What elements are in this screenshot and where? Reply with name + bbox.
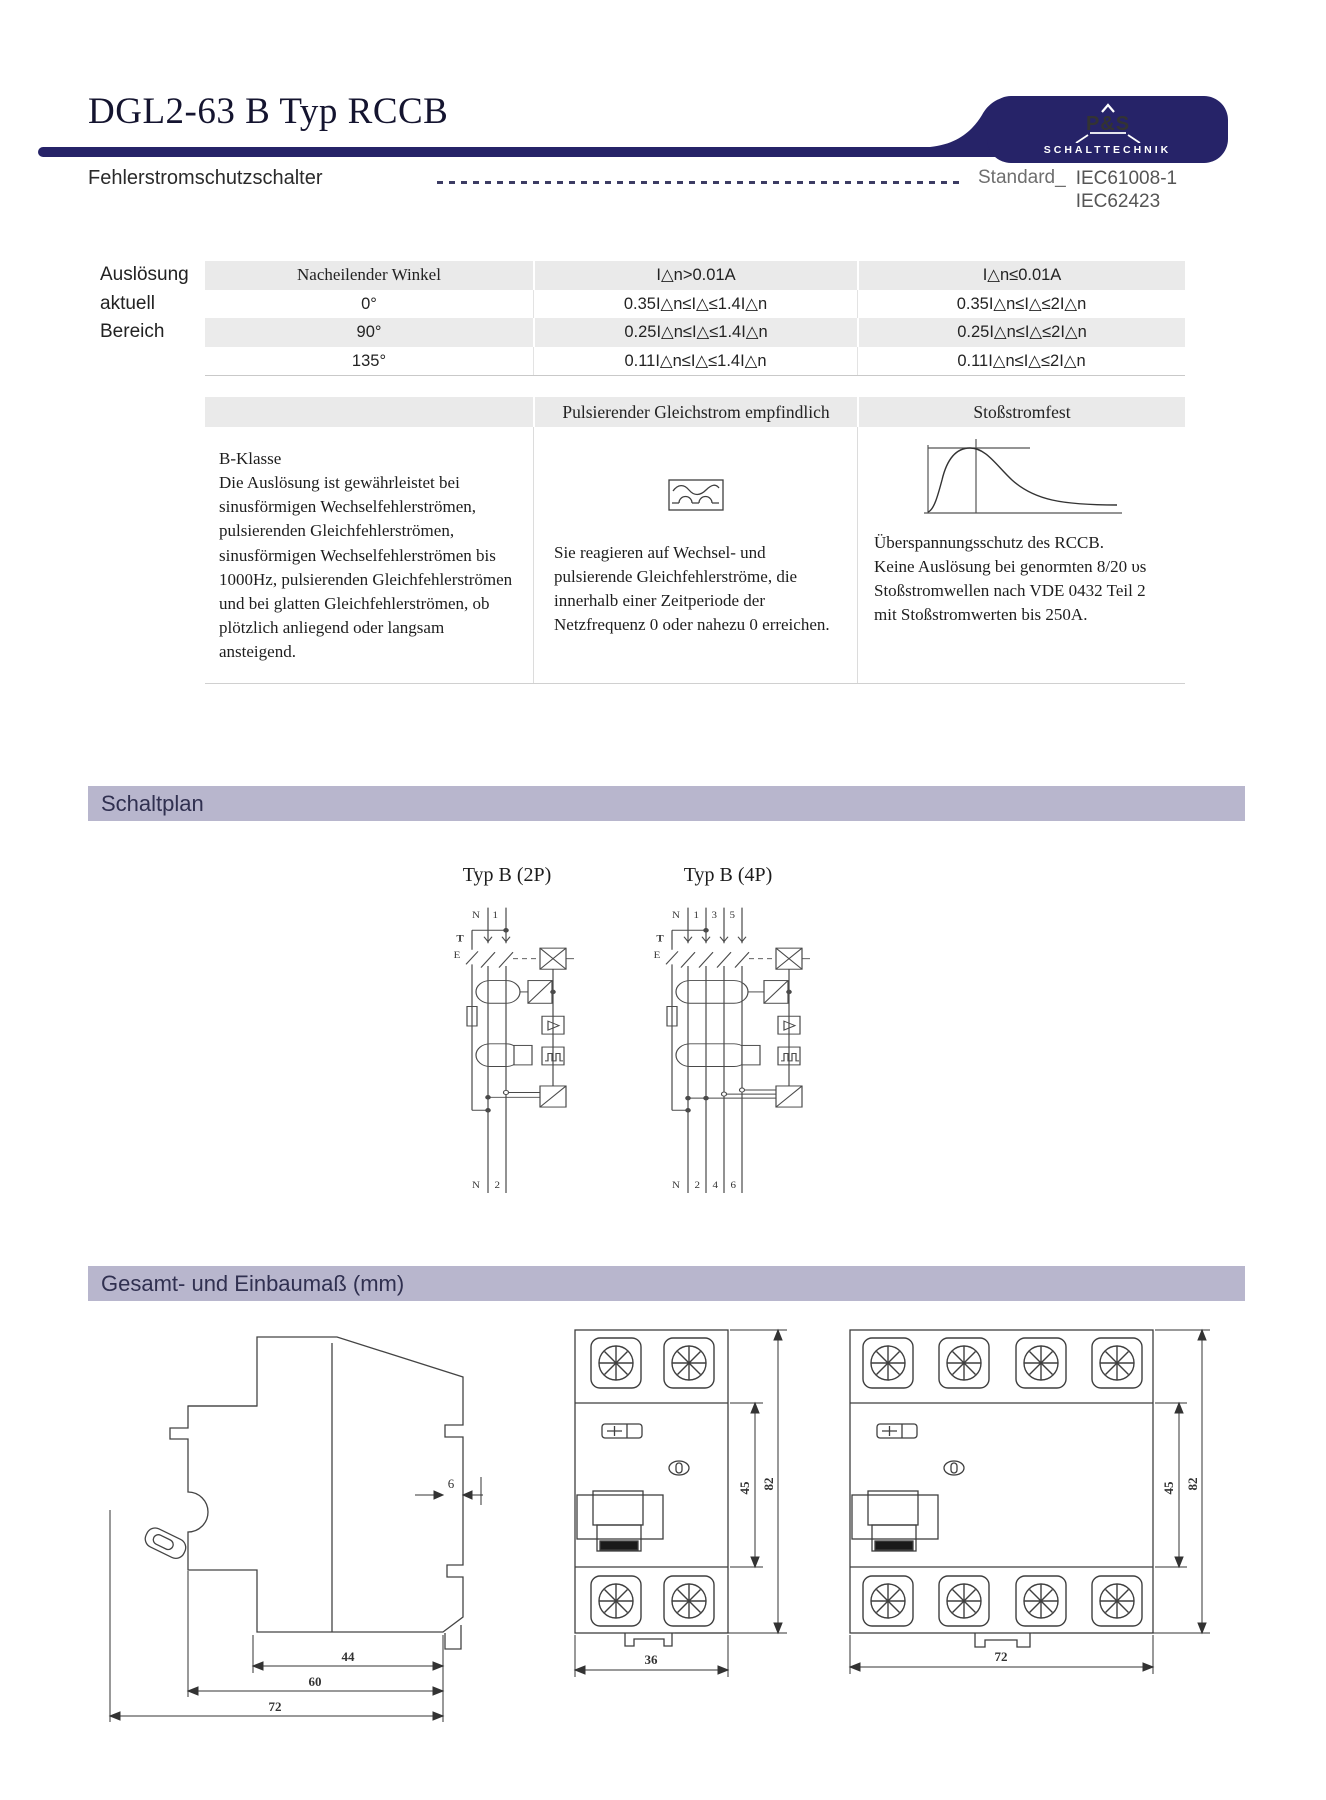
test-label: T bbox=[456, 935, 464, 945]
section-bar-schaltplan: Schaltplan bbox=[88, 786, 1245, 821]
dotted-leader bbox=[437, 181, 964, 184]
section-title: Schaltplan bbox=[101, 791, 204, 816]
indicator-window bbox=[669, 1461, 689, 1475]
surge-header: Stoßstromfest bbox=[857, 397, 1185, 427]
dim-label-rail: 6 bbox=[448, 1476, 455, 1491]
circuit-diagram-4p: N 1 3 5 T E N 2 4 6 bbox=[600, 893, 830, 1193]
toggle-handle bbox=[852, 1491, 938, 1551]
terminal-label: 2 bbox=[495, 1181, 500, 1191]
terminal-label: N bbox=[472, 911, 480, 921]
dim-label-72: 72 bbox=[995, 1649, 1008, 1664]
table-cell: 0.25I△n≤I△≤1.4I△n bbox=[533, 318, 857, 347]
table-cell: 0° bbox=[205, 290, 533, 319]
terminal-label: 1 bbox=[493, 911, 498, 921]
standard-value-1: IEC61008-1 bbox=[1076, 167, 1177, 190]
side-label-line: aktuell bbox=[100, 290, 205, 319]
indicator-window bbox=[944, 1461, 964, 1475]
side-view-drawing: 6 44 60 72 bbox=[95, 1325, 485, 1755]
dim-label-82: 82 bbox=[761, 1478, 776, 1491]
dim-label-45: 45 bbox=[737, 1481, 752, 1495]
terminal-label: N bbox=[672, 911, 680, 921]
empty-header-cell bbox=[205, 397, 533, 427]
subtitle: Fehlerstromschutzschalter bbox=[88, 167, 323, 190]
logo-text: P&S bbox=[1085, 113, 1129, 135]
column-header: I△n>0.01A bbox=[533, 261, 857, 290]
diagram-label-2p: Typ B (2P) bbox=[427, 864, 587, 887]
pulse-cell: Sie reagieren auf Wechsel- und pulsieren… bbox=[533, 427, 857, 683]
logo-tagline: SCHALTTECHNIK bbox=[1044, 144, 1171, 156]
ps-logo-icon: P&S bbox=[1060, 103, 1156, 143]
din-clip bbox=[625, 1633, 672, 1646]
section-title: Gesamt- und Einbaumaß (mm) bbox=[101, 1271, 404, 1296]
trip-table-side-label: Auslösung aktuell Bereich bbox=[100, 261, 205, 376]
standard-value-2: IEC62423 bbox=[1076, 190, 1177, 213]
table-cell: 0.35I△n≤I△≤1.4I△n bbox=[533, 290, 857, 319]
class-table: Pulsierender Gleichstrom empfindlich Sto… bbox=[205, 397, 1185, 684]
column-header: I△n≤0.01A bbox=[857, 261, 1185, 290]
side-label-line: Auslösung bbox=[100, 261, 205, 290]
terminal-label: N bbox=[672, 1181, 680, 1191]
dim-label-45: 45 bbox=[1161, 1481, 1176, 1495]
terminal-label: 5 bbox=[730, 911, 735, 921]
circuit-diagram-2p: N 1 T E N 2 bbox=[390, 893, 590, 1193]
terminal-label: 4 bbox=[713, 1181, 718, 1191]
standard-label: Standard_ bbox=[978, 167, 1066, 213]
page-title: DGL2-63 B Typ RCCB bbox=[88, 90, 448, 133]
section-bar-dimensions: Gesamt- und Einbaumaß (mm) bbox=[88, 1266, 1245, 1301]
table-cell: 0.35I△n≤I△≤2I△n bbox=[857, 290, 1185, 319]
brand-badge: P&S SCHALTTECHNIK bbox=[987, 96, 1228, 163]
dim-label-44: 44 bbox=[342, 1649, 356, 1664]
standard-block: Standard_ IEC61008-1 IEC62423 bbox=[978, 167, 1177, 213]
title-underline bbox=[38, 147, 944, 157]
datasheet-page: DGL2-63 B Typ RCCB P&S SCHALTTECHNIK Feh… bbox=[0, 0, 1326, 1800]
surge-curve-icon bbox=[912, 433, 1132, 525]
test-label: T bbox=[656, 935, 664, 945]
surge-cell: Überspannungsschutz des RCCB. Keine Ausl… bbox=[857, 427, 1185, 683]
front-view-4p-drawing: 45 82 72 bbox=[845, 1322, 1275, 1712]
front-view-2p-drawing: 45 82 36 bbox=[495, 1322, 795, 1712]
test-button bbox=[877, 1424, 917, 1438]
side-label-line: Bereich bbox=[100, 318, 205, 347]
earth-label: E bbox=[454, 951, 461, 961]
toggle-handle bbox=[142, 1525, 189, 1561]
table-cell: 0.25I△n≤I△≤2I△n bbox=[857, 318, 1185, 347]
table-row: 90° 0.25I△n≤I△≤1.4I△n 0.25I△n≤I△≤2I△n bbox=[205, 318, 1185, 347]
terminal-label: N bbox=[472, 1181, 480, 1191]
dim-label-36: 36 bbox=[645, 1652, 659, 1667]
terminal-label: 2 bbox=[695, 1181, 700, 1191]
trip-table: Nacheilender Winkel I△n>0.01A I△n≤0.01A … bbox=[205, 261, 1185, 376]
b-class-text: Die Auslösung ist gewährleistet bei sinu… bbox=[219, 471, 515, 664]
trip-table-block: Auslösung aktuell Bereich Nacheilender W… bbox=[100, 261, 1185, 376]
table-cell: 135° bbox=[205, 347, 533, 376]
toggle-handle bbox=[577, 1491, 663, 1551]
b-class-title: B-Klasse bbox=[219, 447, 515, 471]
dim-label-82: 82 bbox=[1185, 1478, 1200, 1491]
table-row: 135° 0.11I△n≤I△≤1.4I△n 0.11I△n≤I△≤2I△n bbox=[205, 347, 1185, 376]
din-clip bbox=[975, 1633, 1030, 1647]
test-button bbox=[602, 1424, 642, 1438]
column-header: Nacheilender Winkel bbox=[205, 261, 533, 290]
terminal-label: 3 bbox=[712, 911, 717, 921]
table-cell: 0.11I△n≤I△≤2I△n bbox=[857, 347, 1185, 376]
surge-text: Überspannungsschutz des RCCB. Keine Ausl… bbox=[874, 531, 1169, 628]
dim-label-60: 60 bbox=[309, 1674, 322, 1689]
earth-label: E bbox=[654, 951, 661, 961]
terminal-label: 1 bbox=[694, 911, 699, 921]
table-row: 0° 0.35I△n≤I△≤1.4I△n 0.35I△n≤I△≤2I△n bbox=[205, 290, 1185, 319]
terminal-label: 6 bbox=[731, 1181, 736, 1191]
pulse-text: Sie reagieren auf Wechsel- und pulsieren… bbox=[554, 541, 837, 638]
pulse-header: Pulsierender Gleichstrom empfindlich bbox=[533, 397, 857, 427]
pulse-waveform-icon bbox=[668, 479, 724, 511]
diagram-label-4p: Typ B (4P) bbox=[648, 864, 808, 887]
dim-label-72: 72 bbox=[269, 1699, 282, 1714]
table-cell: 0.11I△n≤I△≤1.4I△n bbox=[533, 347, 857, 376]
b-class-cell: B-Klasse Die Auslösung ist gewährleistet… bbox=[205, 427, 533, 683]
table-cell: 90° bbox=[205, 318, 533, 347]
